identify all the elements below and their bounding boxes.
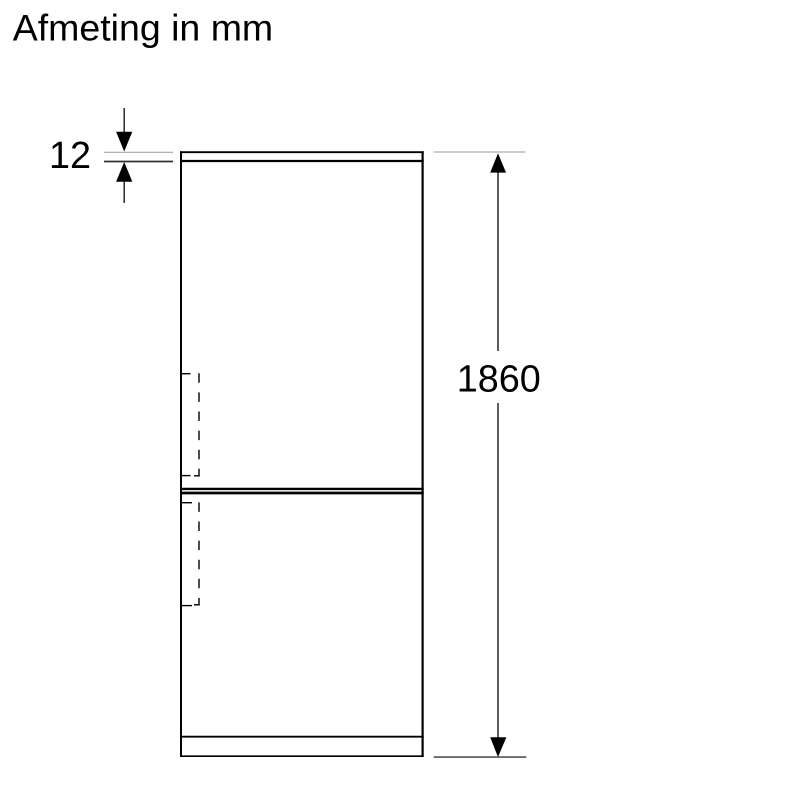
svg-text:12: 12 bbox=[49, 135, 91, 177]
svg-text:1860: 1860 bbox=[457, 358, 541, 400]
svg-text:Afmeting in mm: Afmeting in mm bbox=[13, 7, 274, 49]
